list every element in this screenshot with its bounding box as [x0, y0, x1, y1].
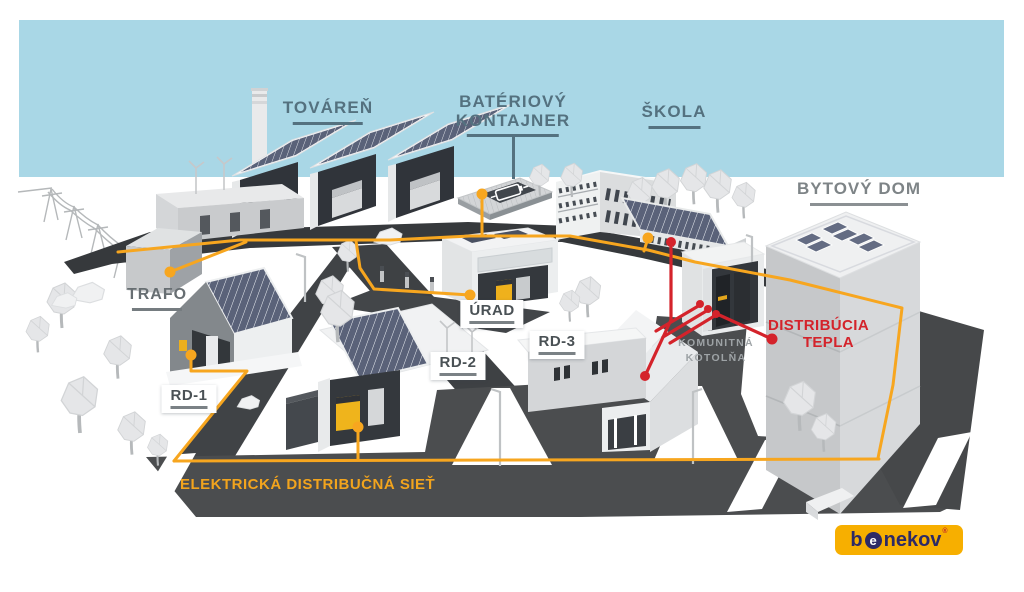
battery-label-connector [512, 137, 515, 179]
registered-mark: ® [942, 528, 947, 535]
label-battery-container: BATÉRIOVÝ KONTAJNER [456, 92, 570, 137]
plate-rd2: RD-2 [430, 352, 485, 380]
label-electric-grid: ELEKTRICKÁ DISTRIBUČNÁ SIEŤ [180, 476, 435, 493]
benekov-logo: b e nekov ® [835, 525, 963, 555]
label-transformer: TRAFO [127, 286, 187, 311]
label-apartment: BYTOVÝ DOM [797, 179, 921, 206]
label-factory: TOVÁREŇ [283, 98, 374, 125]
label-heat-distribution: DISTRIBÚCIA TEPLA [768, 317, 854, 351]
label-community-boiler: KOMUNITNÁ KOTOLŇA [678, 336, 754, 366]
plate-rd3: RD-3 [529, 331, 584, 359]
plate-rd1: RD-1 [161, 385, 216, 413]
logo-prefix: b [850, 529, 862, 552]
logo-suffix: nekov [884, 529, 942, 552]
factory-chimney [252, 88, 267, 164]
energy-network-diagram: TOVÁREŇ BATÉRIOVÝ KONTAJNER ŠKOLA BYTOVÝ… [0, 0, 1024, 592]
logo-letter-e-icon: e [865, 532, 882, 549]
label-school: ŠKOLA [642, 102, 707, 129]
plate-office: ÚRAD [460, 300, 523, 328]
